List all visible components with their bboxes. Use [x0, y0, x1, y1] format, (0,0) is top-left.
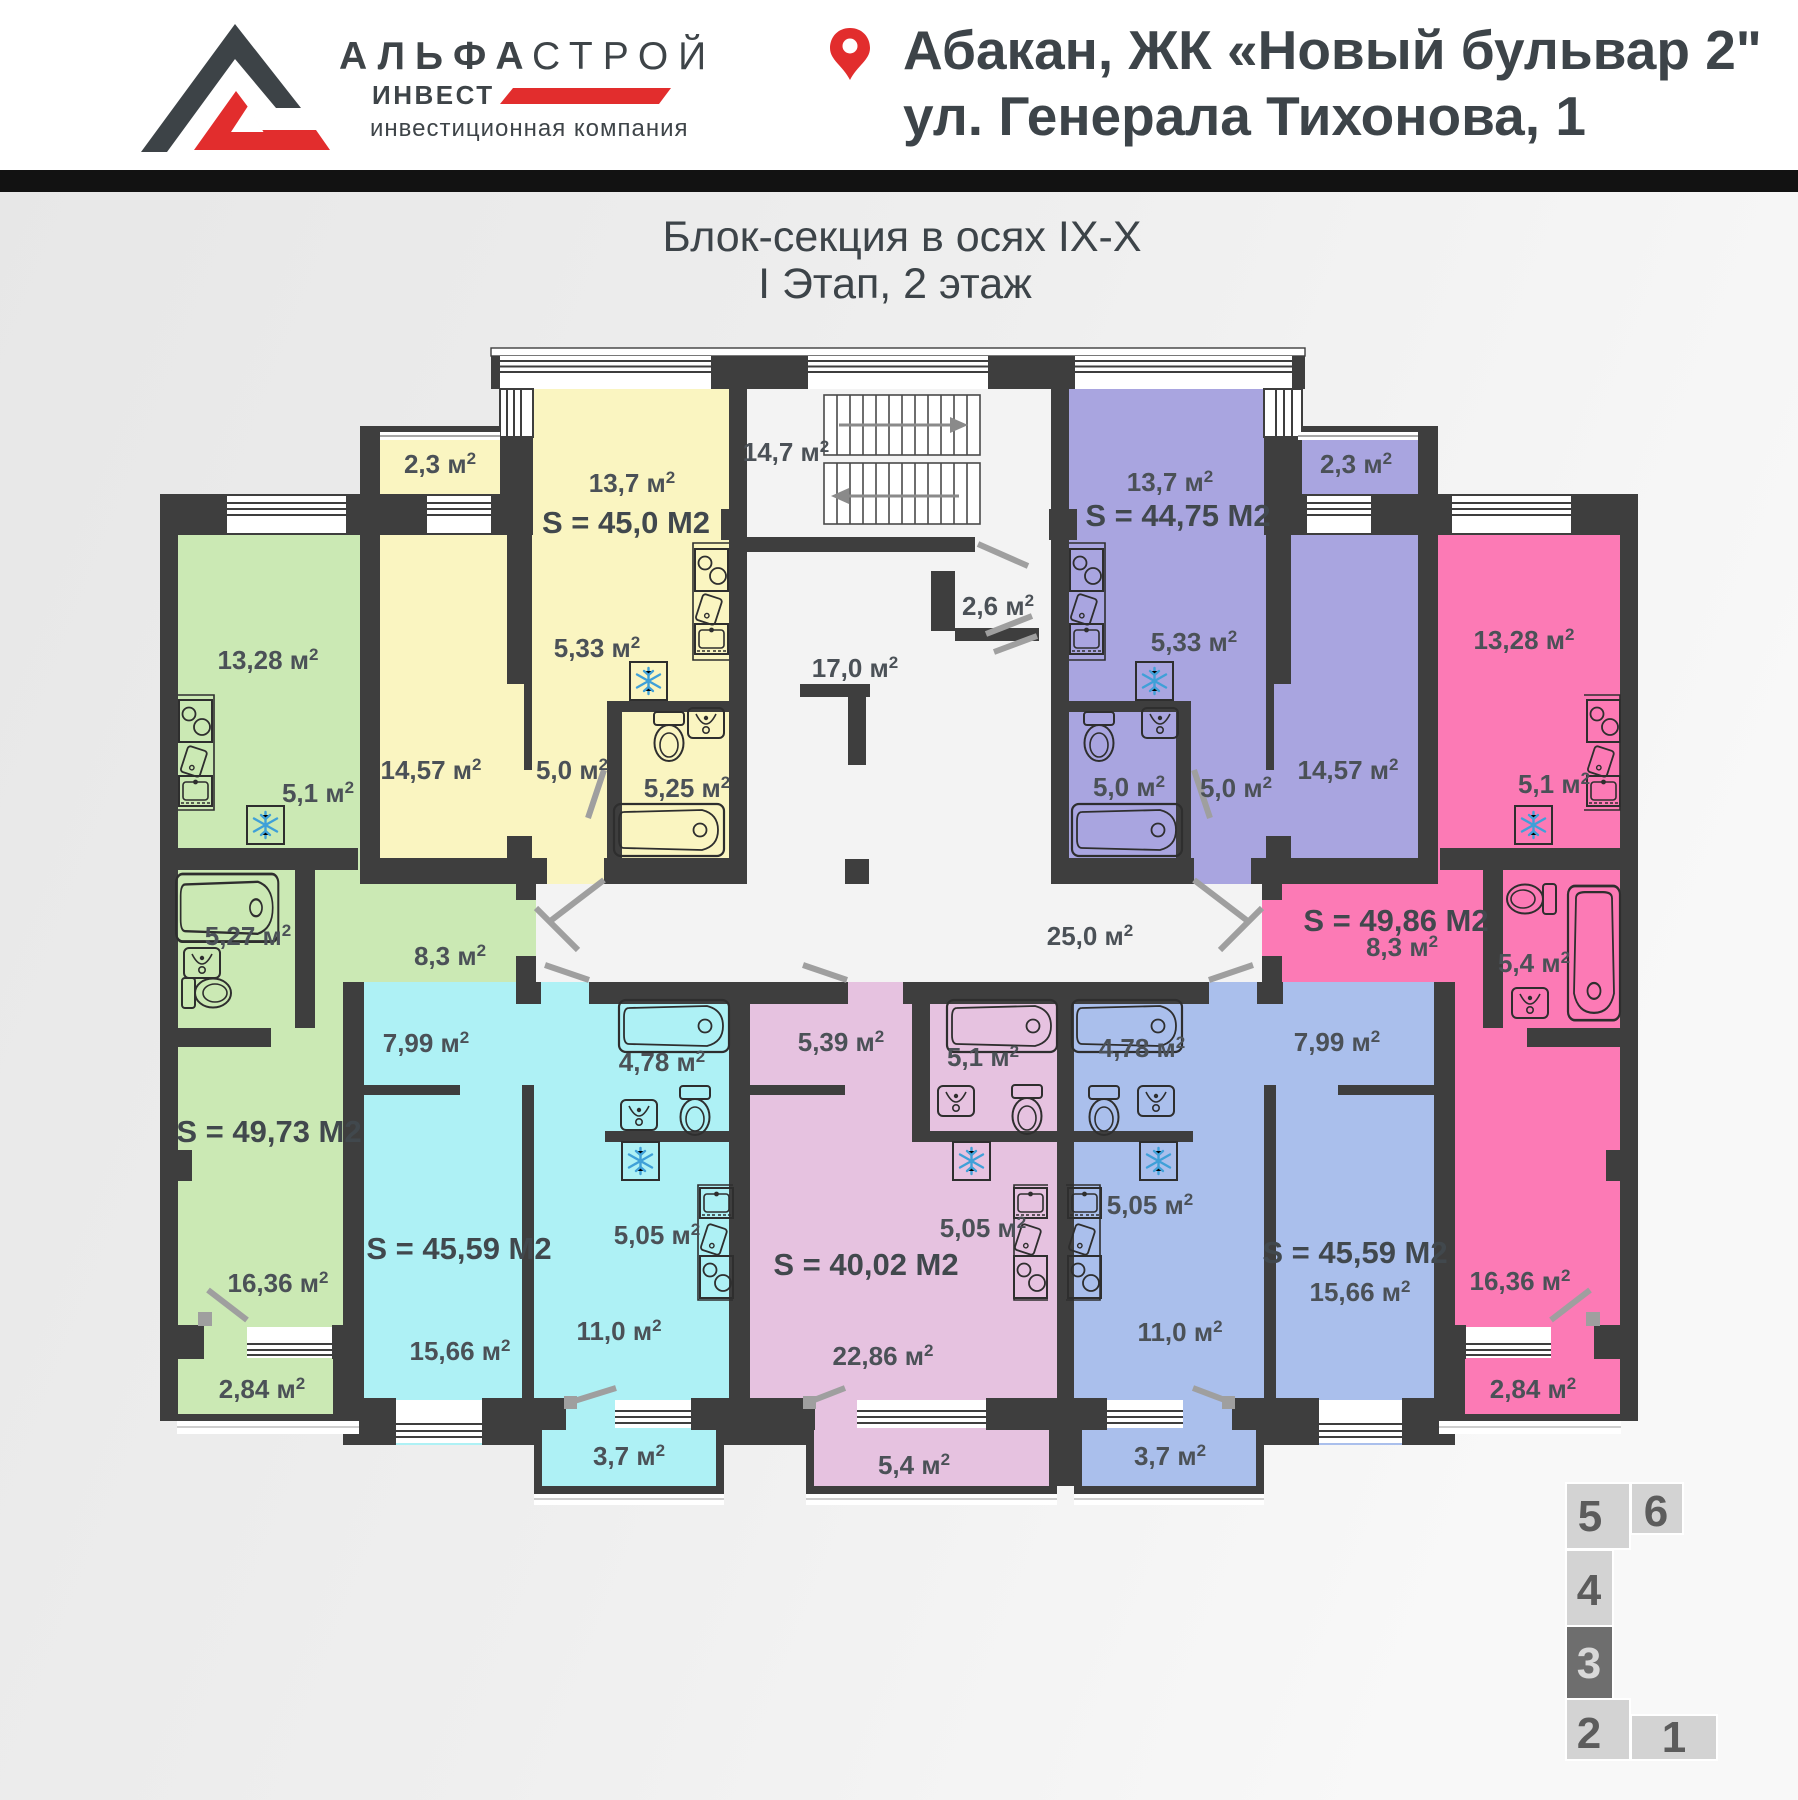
svg-text:инвестиционная компания: инвестиционная компания [370, 115, 689, 142]
svg-text:5,4 м2: 5,4 м2 [1498, 948, 1570, 978]
svg-text:СТРОЙ: СТРОЙ [532, 33, 716, 78]
svg-text:6: 6 [1644, 1487, 1668, 1536]
svg-text:7,99 м2: 7,99 м2 [383, 1028, 470, 1058]
svg-text:5,33 м2: 5,33 м2 [554, 633, 641, 663]
svg-text:5,39 м2: 5,39 м2 [798, 1027, 885, 1057]
svg-text:14,7 м2: 14,7 м2 [743, 437, 830, 467]
svg-text:3,7 м2: 3,7 м2 [593, 1441, 665, 1471]
svg-text:16,36 м2: 16,36 м2 [1470, 1266, 1571, 1296]
svg-text:S = 45,0 М2: S = 45,0 М2 [542, 505, 710, 540]
svg-text:ИНВЕСТ: ИНВЕСТ [372, 80, 495, 110]
svg-text:S = 45,59 М2: S = 45,59 М2 [1262, 1235, 1447, 1270]
svg-text:2,3 м2: 2,3 м2 [1320, 449, 1392, 479]
svg-text:2: 2 [1577, 1709, 1601, 1758]
svg-text:S = 40,02 М2: S = 40,02 М2 [773, 1247, 958, 1282]
svg-text:7,99 м2: 7,99 м2 [1294, 1027, 1381, 1057]
svg-text:13,7 м2: 13,7 м2 [589, 468, 676, 498]
svg-text:S = 44,75 М2: S = 44,75 М2 [1085, 498, 1270, 533]
svg-text:4,78 м2: 4,78 м2 [1099, 1033, 1186, 1063]
svg-text:3,7 м2: 3,7 м2 [1134, 1441, 1206, 1471]
svg-text:S = 49,73 М2: S = 49,73 М2 [176, 1114, 361, 1149]
svg-text:11,0 м2: 11,0 м2 [1137, 1317, 1222, 1347]
svg-text:16,36 м2: 16,36 м2 [228, 1268, 329, 1298]
svg-text:13,7 м2: 13,7 м2 [1127, 467, 1214, 497]
svg-text:5,33 м2: 5,33 м2 [1151, 627, 1238, 657]
svg-text:4,78 м2: 4,78 м2 [619, 1047, 706, 1077]
svg-text:8,3 м2: 8,3 м2 [414, 941, 486, 971]
svg-text:5,0 м2: 5,0 м2 [1093, 772, 1165, 802]
svg-text:11,0 м2: 11,0 м2 [576, 1316, 661, 1346]
svg-text:2,3 м2: 2,3 м2 [404, 449, 476, 479]
svg-text:15,66 м2: 15,66 м2 [410, 1336, 511, 1366]
svg-text:I Этап, 2 этаж: I Этап, 2 этаж [758, 260, 1032, 308]
svg-text:15,66 м2: 15,66 м2 [1310, 1277, 1411, 1307]
svg-text:14,57 м2: 14,57 м2 [381, 755, 482, 785]
svg-text:5,27 м2: 5,27 м2 [205, 921, 292, 951]
svg-text:13,28 м2: 13,28 м2 [1474, 625, 1575, 655]
svg-text:5,1 м2: 5,1 м2 [947, 1042, 1019, 1072]
svg-text:Абакан, ЖК «Новый бульвар 2": Абакан, ЖК «Новый бульвар 2" [903, 19, 1762, 81]
svg-text:3: 3 [1577, 1639, 1601, 1688]
svg-text:8,3 м2: 8,3 м2 [1366, 932, 1438, 962]
svg-text:5: 5 [1578, 1492, 1602, 1541]
svg-text:5,0 м2: 5,0 м2 [1200, 773, 1272, 803]
svg-text:1: 1 [1662, 1713, 1686, 1762]
svg-text:2,84 м2: 2,84 м2 [1490, 1374, 1577, 1404]
svg-text:2,6 м2: 2,6 м2 [962, 591, 1034, 621]
svg-text:5,1 м2: 5,1 м2 [1518, 769, 1590, 799]
svg-text:22,86 м2: 22,86 м2 [833, 1341, 934, 1371]
svg-text:АЛЬФА: АЛЬФА [339, 35, 534, 78]
svg-text:5,05 м2: 5,05 м2 [614, 1220, 701, 1250]
svg-text:14,57 м2: 14,57 м2 [1298, 755, 1399, 785]
svg-text:5,0 м2: 5,0 м2 [536, 755, 608, 785]
svg-text:ул. Генерала Тихонова, 1: ул. Генерала Тихонова, 1 [903, 85, 1586, 147]
svg-text:13,28 м2: 13,28 м2 [218, 645, 319, 675]
svg-text:5,05 м2: 5,05 м2 [940, 1213, 1027, 1243]
svg-text:5,25 м2: 5,25 м2 [644, 773, 731, 803]
svg-text:2,84 м2: 2,84 м2 [219, 1374, 306, 1404]
svg-text:5,05 м2: 5,05 м2 [1107, 1190, 1194, 1220]
svg-text:4: 4 [1577, 1566, 1602, 1615]
svg-text:17,0 м2: 17,0 м2 [812, 653, 899, 683]
svg-text:25,0 м2: 25,0 м2 [1047, 921, 1134, 951]
svg-text:Блок-секция в осях IX-X: Блок-секция в осях IX-X [662, 213, 1141, 261]
svg-text:S = 45,59 М2: S = 45,59 М2 [366, 1231, 551, 1266]
svg-text:5,4 м2: 5,4 м2 [878, 1450, 950, 1480]
svg-text:5,1 м2: 5,1 м2 [282, 778, 354, 808]
